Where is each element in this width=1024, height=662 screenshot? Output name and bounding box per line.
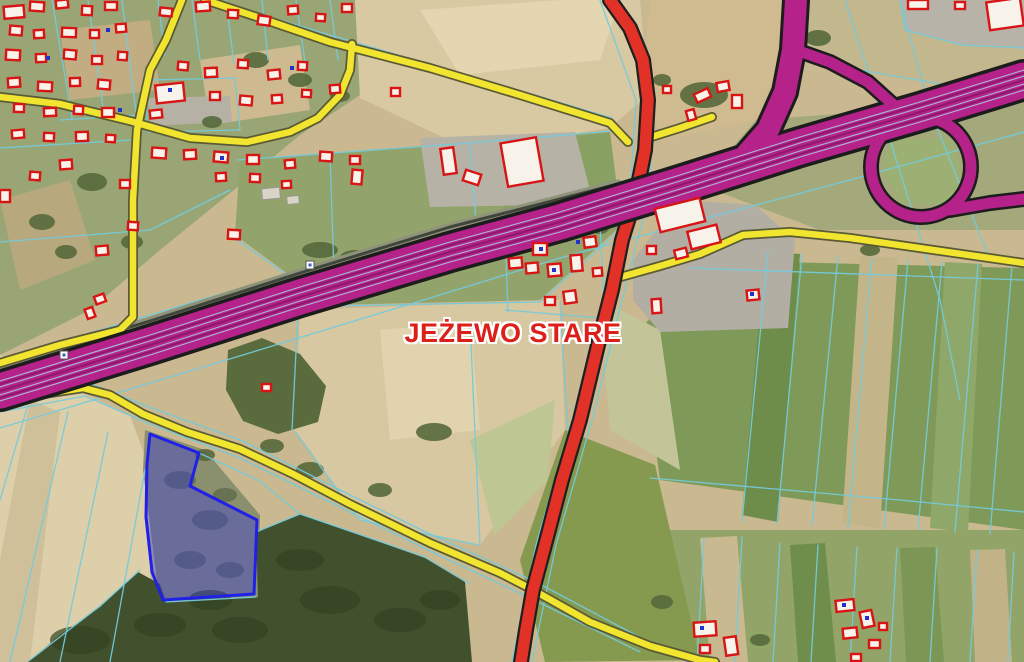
building-footprint [96, 245, 109, 255]
building-footprint [674, 248, 688, 260]
address-point [576, 240, 580, 244]
building-footprint [90, 30, 99, 38]
building-footprint [160, 7, 173, 16]
building-footprint [288, 6, 299, 15]
building-footprint [8, 78, 21, 88]
building-footprint [10, 25, 23, 35]
building-footprint [257, 15, 270, 26]
building-footprint [316, 14, 325, 22]
building-footprint [350, 156, 360, 164]
building-footprint [250, 174, 260, 183]
building-footprint [105, 2, 117, 10]
building-footprint [102, 108, 114, 117]
building-footprint [82, 6, 92, 16]
address-point [220, 156, 224, 160]
building-footprint [563, 290, 577, 304]
building-footprint [526, 262, 539, 273]
building-footprint [210, 92, 220, 100]
building-footprint [120, 180, 130, 188]
building-footprint [583, 236, 596, 248]
building-footprint [228, 230, 240, 240]
address-point [168, 88, 172, 92]
building-footprint [652, 299, 662, 314]
building-footprint [330, 85, 341, 94]
building-footprint [851, 654, 861, 661]
building-footprint [38, 82, 52, 92]
building-footprint [240, 95, 253, 105]
building-footprint [700, 645, 710, 653]
building-footprint [30, 2, 45, 12]
building-footprint [686, 109, 696, 121]
building-footprint [44, 108, 56, 117]
building-footprint [60, 160, 73, 170]
map-viewport[interactable]: JEŻEWO STARE [0, 0, 1024, 662]
building-footprint [869, 640, 880, 648]
building-footprint [320, 152, 333, 162]
building-footprint [843, 627, 858, 638]
address-point [118, 108, 122, 112]
building-footprint [238, 60, 249, 69]
building-footprint [92, 56, 102, 64]
building-footprint [70, 78, 80, 86]
terrain-center-bottom-streak [380, 322, 480, 440]
building-footprint [76, 132, 88, 141]
building-footprint [351, 170, 362, 185]
building-footprint [732, 95, 742, 108]
building-footprint [128, 222, 139, 231]
building-footprint [282, 181, 291, 188]
building-footprint [663, 86, 671, 93]
building-footprint [12, 129, 25, 138]
building-footprint [62, 28, 76, 37]
address-point [290, 66, 294, 70]
building-footprint [14, 104, 24, 112]
building-footprint [879, 623, 887, 630]
map-canvas[interactable] [0, 0, 1024, 662]
building-footprint [6, 50, 21, 61]
building-footprint [955, 2, 965, 9]
building-footprint [285, 160, 296, 169]
building-footprint [262, 384, 271, 391]
building-footprint [216, 173, 227, 182]
building-footprint [268, 69, 281, 79]
address-point [106, 28, 110, 32]
building-footprint [986, 0, 1024, 30]
building-footprint [178, 62, 189, 71]
building-footprint [44, 133, 54, 142]
building-footprint [647, 246, 656, 254]
building-footprint [272, 95, 283, 104]
building-footprint [196, 2, 211, 12]
building-footprint [302, 90, 311, 97]
building-footprint [106, 135, 115, 143]
building-footprint [30, 172, 41, 181]
address-point [539, 247, 543, 251]
building-footprint [509, 257, 523, 268]
address-point [700, 626, 704, 630]
building-footprint [593, 268, 603, 277]
building-footprint [694, 621, 717, 637]
building-footprint [228, 10, 238, 19]
building-footprint [184, 150, 196, 160]
building-footprint [500, 137, 543, 187]
building-footprint [440, 147, 456, 175]
building-footprint [716, 81, 729, 92]
building-footprint [34, 30, 45, 39]
building-footprint [545, 297, 555, 305]
address-point [46, 56, 50, 60]
address-point [750, 292, 754, 296]
building-footprint [298, 62, 307, 70]
building-footprint [908, 0, 928, 9]
building-footprint [724, 636, 738, 655]
address-point [842, 603, 846, 607]
building-footprint [118, 52, 128, 61]
building-footprint [116, 24, 127, 33]
building-footprint [4, 5, 25, 19]
building-footprint [342, 4, 352, 12]
building-footprint [98, 79, 111, 89]
building-footprint [85, 307, 96, 319]
building-footprint [94, 294, 106, 305]
building-footprint [74, 106, 84, 115]
building-footprint [570, 255, 582, 272]
building-footprint [0, 190, 10, 202]
address-point [865, 616, 869, 620]
building-footprint [247, 155, 259, 164]
building-footprint [150, 109, 163, 118]
building-footprint [152, 148, 167, 159]
address-point [552, 268, 556, 272]
building-footprint [391, 88, 400, 96]
building-footprint [155, 83, 185, 104]
building-footprint [205, 68, 217, 78]
building-footprint [36, 54, 46, 63]
building-footprint [56, 0, 69, 9]
building-footprint [64, 49, 77, 59]
